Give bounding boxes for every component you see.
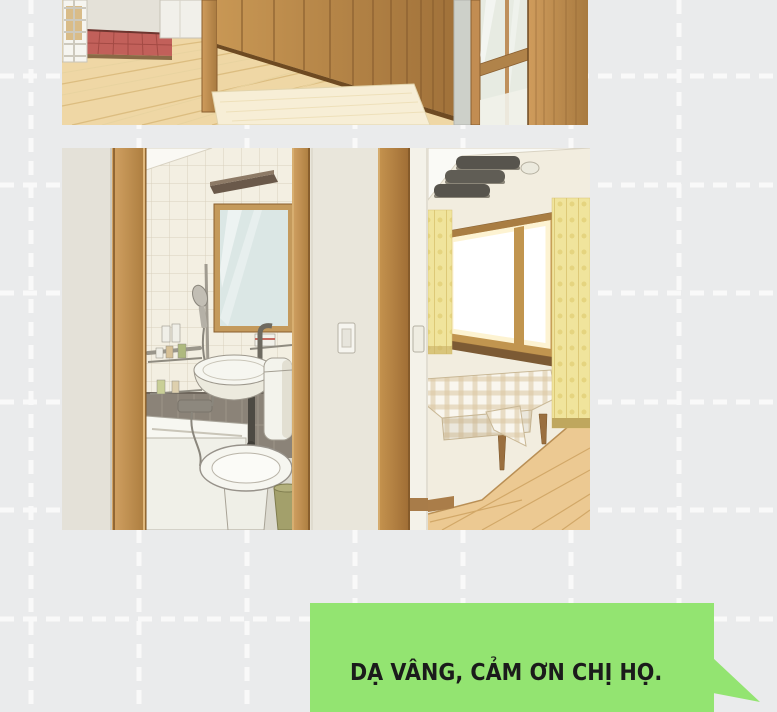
wall-corner-strip [454, 0, 471, 125]
door-handle [413, 326, 424, 352]
bathroom-door-frame-left [112, 148, 146, 530]
glass-door-pillar [528, 0, 588, 125]
speech-bubble-body [310, 603, 714, 712]
glass-door [471, 0, 588, 125]
mirror [214, 204, 294, 332]
outer-wall [62, 148, 112, 530]
window [443, 212, 556, 367]
bedroom-door-frame [378, 148, 410, 530]
bedroom [420, 148, 590, 530]
speech-text: DẠ VÂNG, CẢM ƠN CHỊ HỌ. [350, 660, 662, 686]
round-lamp [521, 162, 539, 174]
speech-bubble-tail [713, 658, 761, 704]
sliding-door [410, 148, 428, 530]
shoe-rack [63, 0, 87, 62]
bathroom-door-frame-right [292, 148, 310, 530]
curtain-right [552, 198, 590, 428]
curtain-left [428, 210, 452, 354]
bathroom [140, 148, 300, 530]
panel-hallway [62, 0, 588, 125]
speech-bubble: DẠ VÂNG, CẢM ƠN CHỊ HỌ. [310, 603, 762, 712]
panel-bathroom-bedroom [62, 148, 590, 530]
light-switch [338, 323, 355, 353]
hallway-wall [310, 148, 378, 530]
entry-door [160, 0, 202, 38]
comic-page: DẠ VÂNG, CẢM ƠN CHỊ HỌ. [0, 0, 777, 712]
